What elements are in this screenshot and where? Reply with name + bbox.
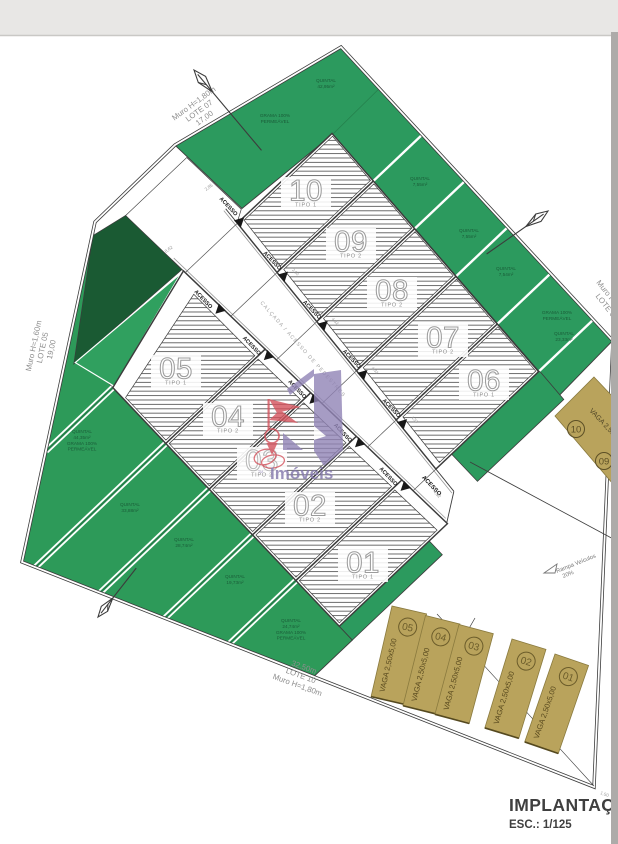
svg-text:33,88m²: 33,88m² (121, 508, 139, 513)
svg-text:QUINTAL: QUINTAL (459, 228, 479, 233)
svg-text:TM: TM (258, 470, 263, 474)
svg-text:QUINTAL: QUINTAL (174, 537, 194, 542)
svg-text:44,35m²: 44,35m² (73, 435, 91, 440)
svg-text:QUINTAL: QUINTAL (225, 574, 245, 579)
svg-text:09: 09 (599, 457, 610, 468)
svg-text:QUINTAL: QUINTAL (410, 176, 430, 181)
svg-text:IMPLANTAÇÃO: IMPLANTAÇÃO (509, 794, 618, 815)
svg-text:QUINTAL: QUINTAL (316, 78, 336, 83)
svg-text:QUINTAL: QUINTAL (496, 266, 516, 271)
svg-text:TIPO 1: TIPO 1 (165, 381, 187, 387)
svg-text:TIPO 1: TIPO 1 (352, 575, 374, 581)
svg-text:TIPO 2: TIPO 2 (432, 350, 454, 356)
svg-text:QUINTAL: QUINTAL (120, 502, 140, 507)
svg-text:19,73m²: 19,73m² (226, 580, 244, 585)
svg-text:7,55m²: 7,55m² (413, 182, 428, 187)
svg-text:24,74m²: 24,74m² (282, 624, 300, 629)
svg-text:QUINTAL: QUINTAL (72, 429, 92, 434)
svg-text:Imóveis: Imóveis (270, 464, 333, 483)
svg-text:42,95m²: 42,95m² (317, 84, 335, 89)
svg-text:TIPO 1: TIPO 1 (473, 393, 495, 399)
svg-text:TIPO 2: TIPO 2 (299, 518, 321, 524)
svg-text:GRAMA 100%: GRAMA 100% (67, 441, 97, 446)
svg-text:PERMEÁVEL: PERMEÁVEL (543, 315, 572, 321)
svg-text:TIPO 2: TIPO 2 (217, 429, 239, 435)
svg-text:TIPO 1: TIPO 1 (295, 203, 317, 209)
svg-text:QUINTAL: QUINTAL (281, 618, 301, 623)
svg-text:QUINTAL: QUINTAL (554, 331, 574, 336)
svg-text:10: 10 (571, 425, 582, 436)
svg-text:GRAMA 100%: GRAMA 100% (542, 310, 572, 315)
svg-text:28,74m²: 28,74m² (175, 543, 193, 548)
svg-text:GRAMA 100%: GRAMA 100% (276, 630, 306, 635)
svg-text:7,54m²: 7,54m² (499, 272, 514, 277)
svg-text:PERMEÁVEL: PERMEÁVEL (277, 635, 306, 641)
svg-text:7,55m²: 7,55m² (462, 234, 477, 239)
svg-text:23,33m²: 23,33m² (555, 337, 573, 342)
svg-text:TIPO 2: TIPO 2 (340, 254, 362, 260)
svg-text:TIPO 2: TIPO 2 (381, 303, 403, 309)
svg-text:PERMEÁVEL: PERMEÁVEL (261, 118, 290, 124)
svg-text:GRAMA 100%: GRAMA 100% (260, 113, 290, 118)
svg-text:PERMEÁVEL: PERMEÁVEL (68, 446, 97, 452)
svg-text:ESC.: 1/125: ESC.: 1/125 (509, 819, 572, 831)
